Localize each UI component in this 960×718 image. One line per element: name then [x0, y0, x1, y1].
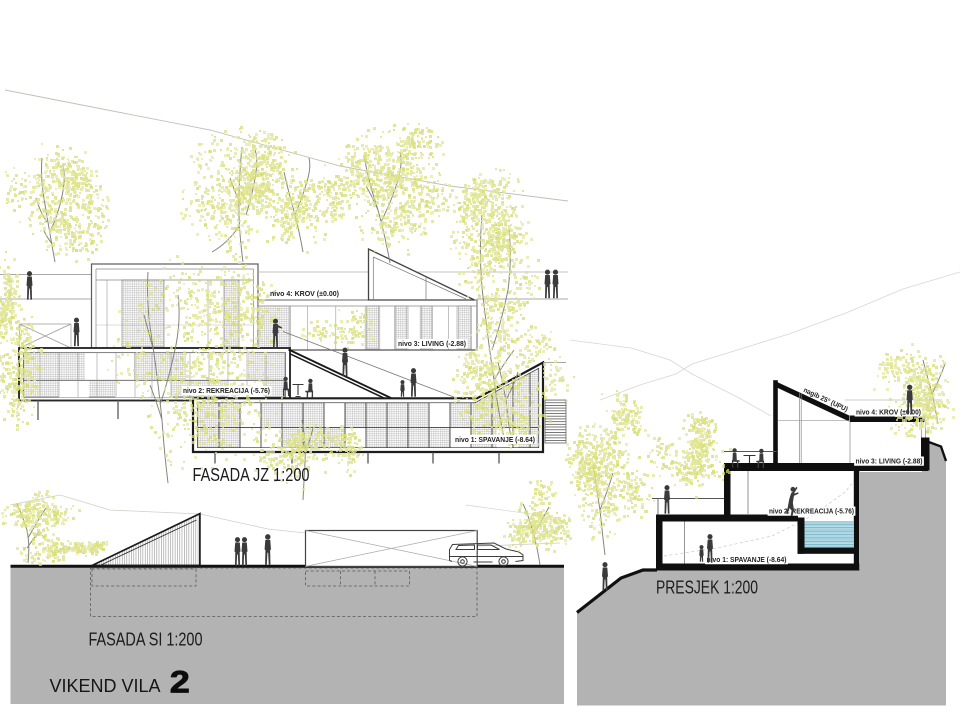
svg-text:nivo 3: LIVING (-2.88): nivo 3: LIVING (-2.88) [398, 341, 466, 348]
svg-text:nivo 3: LIVING (-2.88): nivo 3: LIVING (-2.88) [856, 459, 923, 466]
svg-text:PRESJEK 1:200: PRESJEK 1:200 [656, 578, 758, 598]
svg-text:2: 2 [170, 665, 190, 700]
svg-text:FASADA SI 1:200: FASADA SI 1:200 [89, 630, 203, 650]
svg-text:nivo 4: KROV (±0.00): nivo 4: KROV (±0.00) [270, 291, 339, 298]
svg-text:nivo 1: SPAVANJE (-8.64): nivo 1: SPAVANJE (-8.64) [455, 437, 535, 444]
svg-text:nivo 1: SPAVANJE (-8.64): nivo 1: SPAVANJE (-8.64) [707, 557, 787, 564]
svg-text:nivo 2: REKREACIJA (-5.76): nivo 2: REKREACIJA (-5.76) [769, 509, 854, 516]
svg-text:nivo 2: REKREACIJA (-5.76): nivo 2: REKREACIJA (-5.76) [183, 388, 270, 395]
svg-text:FASADA JZ 1:200: FASADA JZ 1:200 [193, 465, 310, 485]
svg-text:VIKEND VILA: VIKEND VILA [50, 675, 162, 696]
